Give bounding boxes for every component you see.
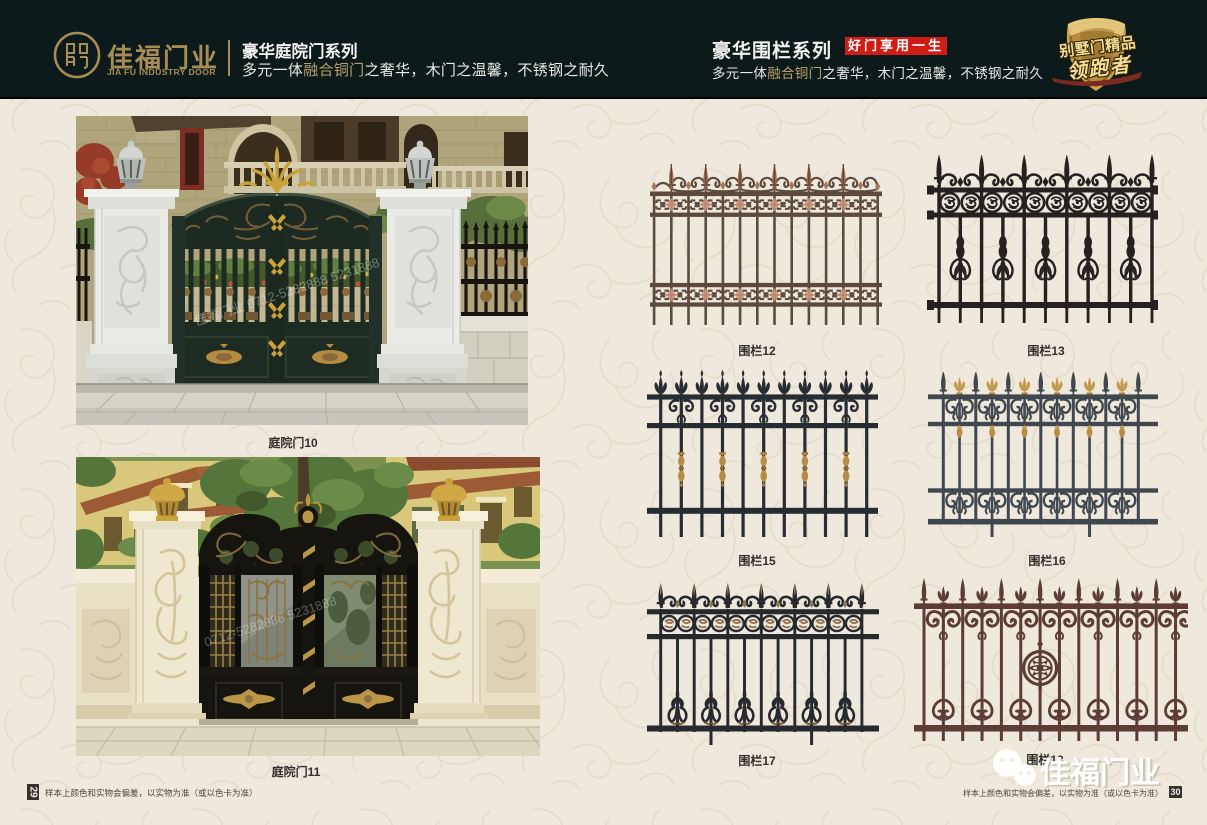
svg-text:佳福门业: 佳福门业 [1040,757,1160,790]
